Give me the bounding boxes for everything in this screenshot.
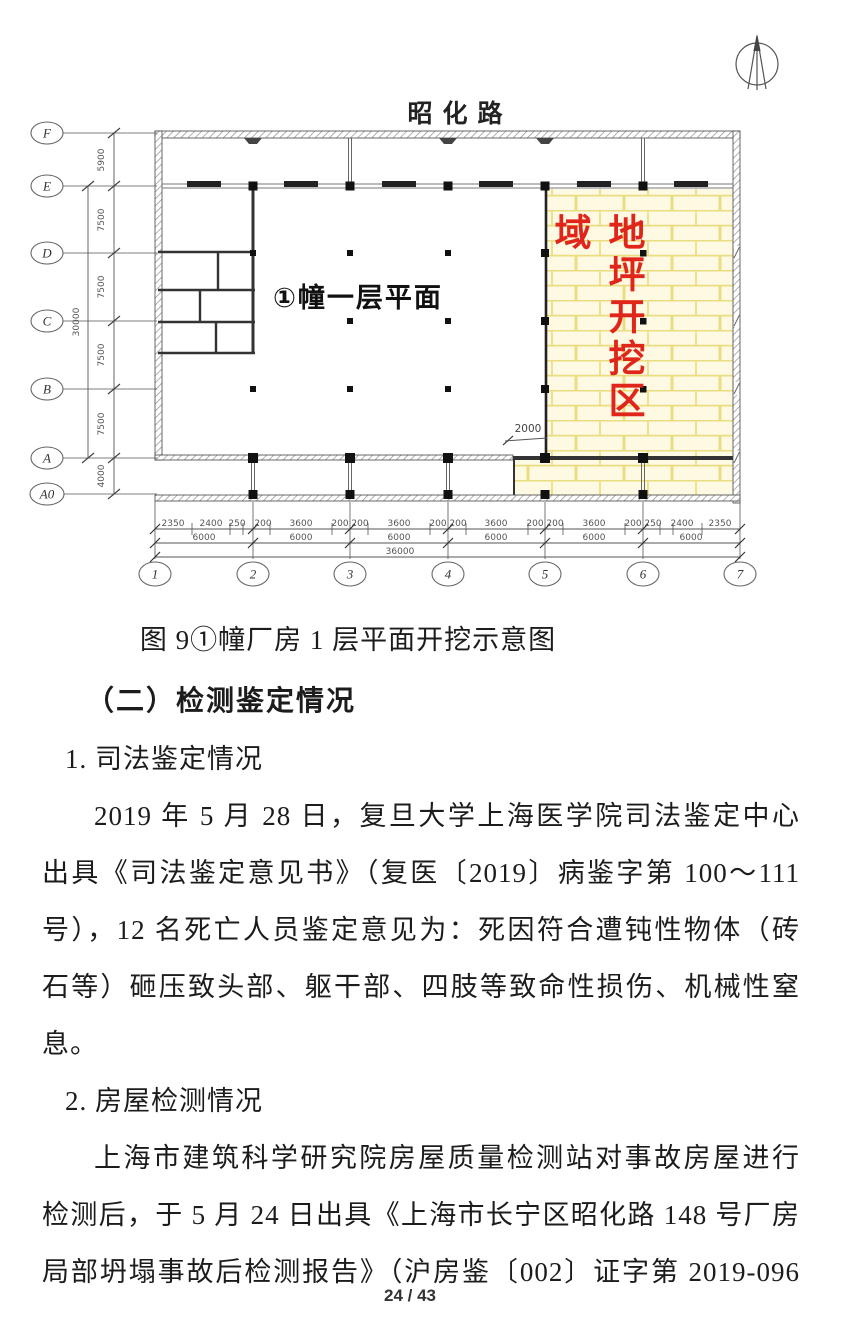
svg-text:6000: 6000 xyxy=(193,533,216,543)
svg-text:3: 3 xyxy=(346,567,354,582)
svg-text:C: C xyxy=(43,314,52,329)
svg-text:2400: 2400 xyxy=(671,519,694,529)
svg-text:2400: 2400 xyxy=(200,519,223,529)
svg-text:36000: 36000 xyxy=(386,547,415,557)
bottom-dimensions: 2350 2400 250 200 3600 200 200 3600 200 … xyxy=(150,501,745,562)
paragraph2-line2: 检测后，于 5 月 24 日出具《上海市长宁区昭化路 148 号厂房 xyxy=(42,1193,800,1232)
svg-text:200: 200 xyxy=(429,519,446,529)
svg-text:F: F xyxy=(42,126,52,141)
svg-text:200: 200 xyxy=(331,519,348,529)
svg-text:E: E xyxy=(42,179,51,194)
svg-text:6000: 6000 xyxy=(680,533,703,543)
section-heading: （二）检测鉴定情况 xyxy=(86,679,356,719)
svg-text:200: 200 xyxy=(254,519,271,529)
svg-text:2350: 2350 xyxy=(162,519,185,529)
svg-text:200: 200 xyxy=(449,519,466,529)
svg-text:200: 200 xyxy=(526,519,543,529)
svg-text:4000: 4000 xyxy=(97,464,107,487)
excavation-zone-label: 地坪开挖区域 xyxy=(604,213,650,463)
svg-text:5900: 5900 xyxy=(97,148,107,171)
svg-text:6000: 6000 xyxy=(583,533,606,543)
paragraph1-line2: 出具《司法鉴定意见书》（复医〔2019〕病鉴字第 100～111 xyxy=(42,851,800,890)
left-dimensions: 5900 7500 7500 7500 7500 4000 30000 xyxy=(72,128,120,499)
svg-text:6000: 6000 xyxy=(290,533,313,543)
svg-text:2000: 2000 xyxy=(515,423,542,435)
svg-text:7500: 7500 xyxy=(97,412,107,435)
paragraph2-line1: 上海市建筑科学研究院房屋质量检测站对事故房屋进行 xyxy=(94,1136,800,1175)
svg-text:2: 2 xyxy=(250,567,257,582)
floor-plan-figure: 昭化路 xyxy=(0,0,843,600)
paragraph1-line3: 号），12 名死亡人员鉴定意见为：死因符合遭钝性物体（砖 xyxy=(42,908,800,947)
svg-text:250: 250 xyxy=(228,519,245,529)
svg-text:5: 5 xyxy=(542,567,549,582)
svg-text:30000: 30000 xyxy=(72,307,82,336)
page-number: 24 / 43 xyxy=(10,1286,810,1306)
svg-text:3600: 3600 xyxy=(485,519,508,529)
svg-text:6: 6 xyxy=(640,567,647,582)
row-axis-bubbles: F E D C B A A0 xyxy=(30,122,157,505)
svg-text:3600: 3600 xyxy=(583,519,606,529)
svg-text:200: 200 xyxy=(351,519,368,529)
building-label: ①幢一层平面 xyxy=(273,282,443,313)
svg-text:7500: 7500 xyxy=(97,208,107,231)
paragraph1-line5: 息。 xyxy=(42,1022,98,1061)
svg-text:6000: 6000 xyxy=(485,533,508,543)
paragraph2-line3: 局部坍塌事故后检测报告》（沪房鉴〔002〕证字第 2019-096 xyxy=(42,1250,800,1289)
svg-text:7500: 7500 xyxy=(97,275,107,298)
svg-text:3600: 3600 xyxy=(388,519,411,529)
figure-caption: 图 9①幢厂房 1 层平面开挖示意图 xyxy=(42,618,654,657)
door-marks xyxy=(244,138,554,144)
document-page: 昭化路 xyxy=(0,0,843,1340)
svg-text:6000: 6000 xyxy=(388,533,411,543)
col-axis-bubbles: 1 2 3 4 5 6 7 xyxy=(139,562,756,586)
item1-heading: 1. 司法鉴定情况 xyxy=(65,737,263,776)
svg-text:7500: 7500 xyxy=(97,343,107,366)
partition-walls-top xyxy=(349,138,645,182)
paragraph1-line1: 2019 年 5 月 28 日，复旦大学上海医学院司法鉴定中心 xyxy=(94,794,800,833)
svg-text:7: 7 xyxy=(737,567,744,582)
svg-text:A0: A0 xyxy=(39,487,55,502)
svg-text:D: D xyxy=(41,246,52,261)
road-label: 昭化路 xyxy=(407,100,512,128)
svg-text:A: A xyxy=(42,451,51,466)
svg-text:B: B xyxy=(43,382,51,397)
svg-text:4: 4 xyxy=(445,567,452,582)
paragraph1-line4: 石等）砸压致头部、躯干部、四肢等致命性损伤、机械性窒 xyxy=(42,965,800,1004)
svg-text:200: 200 xyxy=(546,519,563,529)
svg-text:1: 1 xyxy=(152,567,159,582)
room-block xyxy=(158,188,255,353)
item2-heading: 2. 房屋检测情况 xyxy=(65,1079,263,1118)
svg-text:250: 250 xyxy=(644,519,661,529)
svg-text:2350: 2350 xyxy=(709,519,732,529)
excavation-extent-dimension: 2000 xyxy=(503,423,547,445)
north-arrow-icon xyxy=(736,34,778,90)
svg-text:200: 200 xyxy=(624,519,641,529)
svg-text:3600: 3600 xyxy=(290,519,313,529)
